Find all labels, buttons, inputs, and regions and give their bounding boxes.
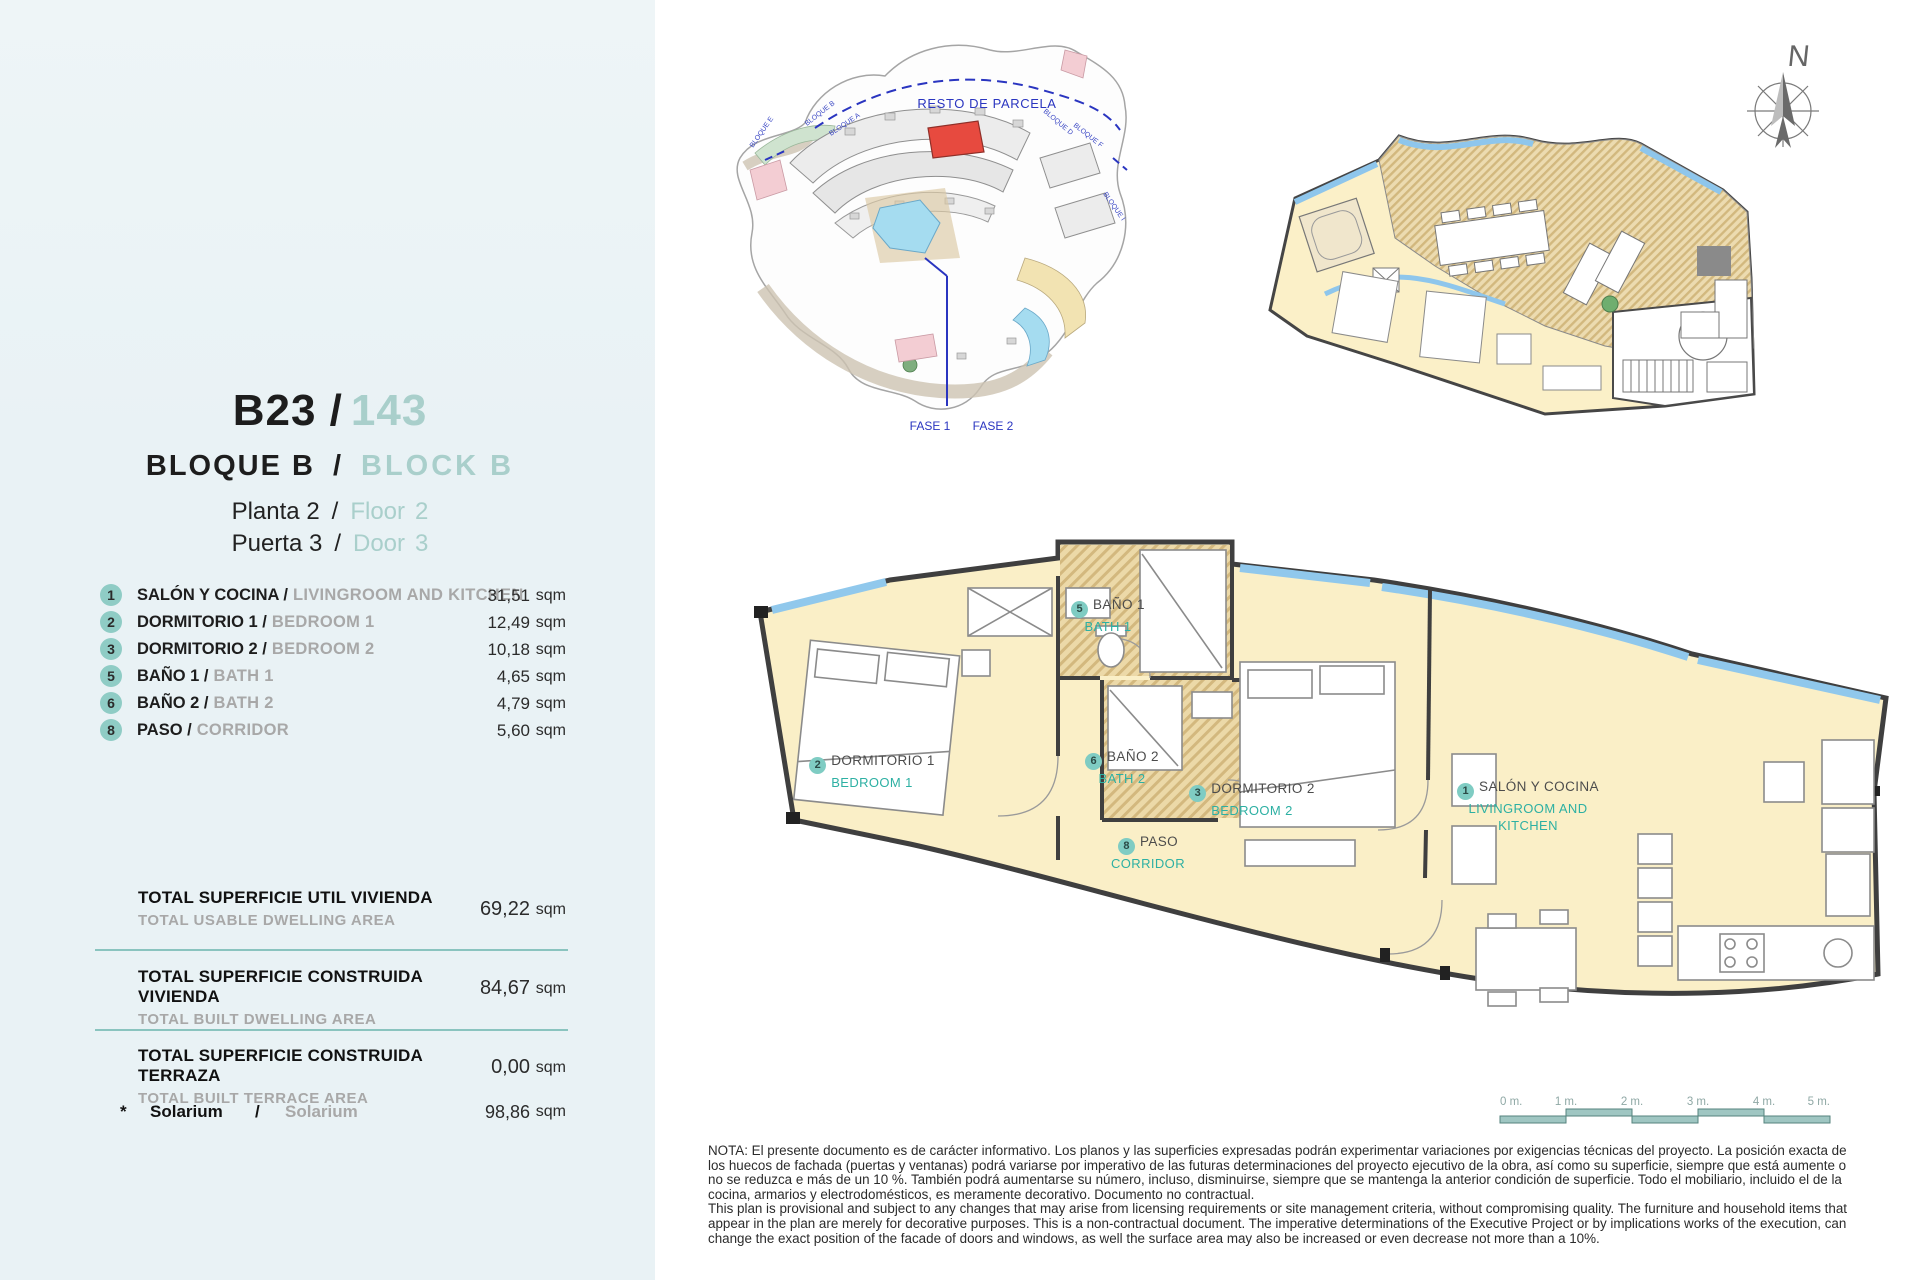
total-terrace-value: 0,00 — [430, 1056, 530, 1079]
scale-label: 5 m. — [1808, 1096, 1830, 1108]
room-num-badge: 8 — [100, 719, 122, 741]
total-built-value: 84,67 — [430, 977, 530, 1000]
floor-en-label: Floor — [350, 498, 405, 525]
room-label-bedroom1: 2DORMITORIO 1 BEDROOM 1 — [797, 752, 947, 791]
room-label-en: BATH 2 — [214, 694, 274, 712]
total-terrace-row: TOTAL SUPERFICIE CONSTRUIDA TERRAZA TOTA… — [95, 1046, 566, 1076]
room-name-en: BEDROOM 2 — [1177, 802, 1327, 819]
room-number-badge: 3 — [1189, 785, 1206, 802]
room-name-es: SALÓN Y COCINA — [1479, 779, 1599, 794]
unit-number: 143 — [351, 386, 427, 435]
room-area-unit: sqm — [536, 587, 566, 605]
door-en-label: Door — [353, 530, 405, 557]
solarium-value: 98,86 — [440, 1102, 530, 1123]
room-num-badge: 5 — [100, 665, 122, 687]
room-label-en: BATH 1 — [214, 667, 274, 685]
room-area: 12,49 — [440, 613, 530, 633]
room-label-en: BEDROOM 2 — [272, 640, 375, 658]
room-row-corridor: 8 PASO /CORRIDOR 5,60 sqm — [95, 719, 566, 745]
terrace-dark-unit — [1697, 246, 1731, 276]
legal-note-es: NOTA: El presente documento es de caráct… — [708, 1144, 1848, 1202]
floor-es: Planta 2 — [232, 498, 320, 525]
room-number-badge: 6 — [1085, 753, 1102, 770]
door-en-value: 3 — [415, 530, 428, 557]
total-built-unit: sqm — [536, 980, 566, 998]
plant-mark — [1602, 296, 1618, 312]
room-name-en: BATH 2 — [1047, 770, 1197, 787]
room-name-en-line2: KITCHEN — [1438, 817, 1618, 834]
solarium-sep: / — [255, 1102, 260, 1122]
room-area: 4,79 — [440, 694, 530, 714]
room-name-es: DORMITORIO 1 — [831, 753, 935, 768]
scale-label: 3 m. — [1687, 1096, 1709, 1108]
compass-north-label: N — [1786, 40, 1811, 73]
room-name-es: PASO — [1140, 834, 1178, 849]
room-name-es: DORMITORIO 2 — [1211, 781, 1315, 796]
total-built-en: TOTAL BUILT DWELLING AREA — [138, 1011, 438, 1028]
room-num-badge: 6 — [100, 692, 122, 714]
scale-label: 2 m. — [1621, 1096, 1643, 1108]
room-area-unit: sqm — [536, 641, 566, 659]
solarium-es: Solarium — [150, 1102, 223, 1122]
legal-note-en: This plan is provisional and subject to … — [708, 1202, 1848, 1246]
room-area-unit: sqm — [536, 695, 566, 713]
room-row-living: 1 SALÓN Y COCINA /LIVINGROOM AND KITCHEN… — [95, 584, 566, 610]
room-number-badge: 1 — [1457, 783, 1474, 800]
room-area: 10,18 — [440, 640, 530, 660]
room-area: 4,65 — [440, 667, 530, 687]
room-area-unit: sqm — [536, 614, 566, 632]
room-name-es: BAÑO 2 — [1107, 749, 1159, 764]
room-number-badge: 2 — [809, 757, 826, 774]
totals-divider — [95, 949, 568, 951]
unit-code: B23 / — [233, 386, 343, 435]
room-area: 5,60 — [440, 721, 530, 741]
room-area-unit: sqm — [536, 668, 566, 686]
solarium-en: Solarium — [285, 1102, 358, 1122]
floorplan-sheet: B23 /143 BLOQUE B/BLOCK B Planta 2/Floor… — [0, 0, 1920, 1280]
block-title-en: BLOCK B — [361, 450, 514, 482]
scale-label: 4 m. — [1753, 1096, 1775, 1108]
room-name-es: BAÑO 1 — [1093, 597, 1145, 612]
room-label-es: BAÑO 1 / — [137, 667, 209, 685]
room-name-en-line1: LIVINGROOM AND — [1438, 800, 1618, 817]
floor-line: Planta 2/Floor2 — [95, 498, 565, 526]
room-label-es: SALÓN Y COCINA / — [137, 586, 288, 604]
total-terrace-unit: sqm — [536, 1059, 566, 1077]
overview-plan — [1245, 98, 1795, 428]
room-name-en: BATH 1 — [1033, 618, 1183, 635]
room-name-en: CORRIDOR — [1073, 855, 1223, 872]
room-label-en: CORRIDOR — [197, 721, 289, 739]
total-usable-row: TOTAL SUPERFICIE UTIL VIVIENDA TOTAL USA… — [95, 888, 566, 918]
site-plan: RESTO DE PARCELA FASE 1 FASE 2 BLOQUE E … — [695, 8, 1150, 453]
solarium-row: * Solarium / Solarium 98,86 sqm — [95, 1100, 566, 1126]
spec-sidebar: B23 /143 BLOQUE B/BLOCK B Planta 2/Floor… — [0, 0, 655, 1280]
scale-bar: 0 m. 1 m. 2 m. 3 m. 4 m. 5 m. — [1492, 1092, 1842, 1134]
room-label-es: DORMITORIO 1 / — [137, 613, 267, 631]
total-usable-value: 69,22 — [430, 898, 530, 921]
stairs — [1623, 360, 1693, 392]
floor-en-value: 2 — [415, 498, 428, 525]
room-num-badge: 2 — [100, 611, 122, 633]
room-num-badge: 3 — [100, 638, 122, 660]
solarium-star: * — [120, 1102, 127, 1122]
room-label-es: DORMITORIO 2 / — [137, 640, 267, 658]
total-usable-es: TOTAL SUPERFICIE UTIL VIVIENDA — [138, 888, 438, 908]
fase2-label: FASE 2 — [973, 419, 1014, 433]
room-area: 31,51 — [440, 586, 530, 606]
sidebar-top-panel — [0, 0, 655, 438]
scale-label: 0 m. — [1500, 1096, 1522, 1108]
door-line: Puerta 3/Door3 — [95, 530, 565, 558]
scale-segments — [1500, 1109, 1830, 1123]
block-title-es: BLOQUE B — [146, 450, 315, 482]
room-area-unit: sqm — [536, 722, 566, 740]
room-label-living: 1SALÓN Y COCINA LIVINGROOM AND KITCHEN — [1438, 778, 1618, 834]
room-label-es: BAÑO 2 / — [137, 694, 209, 712]
solarium-unit: sqm — [536, 1103, 566, 1121]
room-label-bedroom2: 3DORMITORIO 2 BEDROOM 2 — [1177, 780, 1327, 819]
total-usable-en: TOTAL USABLE DWELLING AREA — [138, 912, 438, 929]
room-label-corridor: 8PASO CORRIDOR — [1073, 833, 1223, 872]
fase1-label: FASE 1 — [910, 419, 951, 433]
legal-note: NOTA: El presente documento es de caráct… — [708, 1144, 1848, 1246]
highlighted-unit-block — [928, 121, 984, 158]
utility-cabinet — [1707, 362, 1747, 392]
room-number-badge: 8 — [1118, 838, 1135, 855]
totals-divider — [95, 1029, 568, 1031]
unit-title: B23 /143 — [95, 386, 565, 436]
total-built-es: TOTAL SUPERFICIE CONSTRUIDA VIVIENDA — [138, 967, 438, 1007]
room-label-bath1: 5BAÑO 1 BATH 1 — [1033, 596, 1183, 635]
room-row-bath2: 6 BAÑO 2 /BATH 2 4,79 sqm — [95, 692, 566, 718]
block-title: BLOQUE B/BLOCK B — [95, 450, 565, 483]
total-usable-unit: sqm — [536, 901, 566, 919]
room-label-en: BEDROOM 1 — [272, 613, 375, 631]
room-number-badge: 5 — [1071, 601, 1088, 618]
block-title-sep: / — [333, 450, 343, 482]
room-num-badge: 1 — [100, 584, 122, 606]
floor-sep: / — [332, 498, 339, 525]
door-sep: / — [334, 530, 341, 557]
room-label-bath2: 6BAÑO 2 BATH 2 — [1047, 748, 1197, 787]
scale-labels: 0 m. 1 m. 2 m. 3 m. 4 m. 5 m. — [1500, 1096, 1830, 1108]
room-name-en: BEDROOM 1 — [797, 774, 947, 791]
total-terrace-es: TOTAL SUPERFICIE CONSTRUIDA TERRAZA — [138, 1046, 438, 1086]
scale-label: 1 m. — [1555, 1096, 1577, 1108]
room-label-es: PASO / — [137, 721, 192, 739]
total-built-row: TOTAL SUPERFICIE CONSTRUIDA VIVIENDA TOT… — [95, 967, 566, 997]
door-es: Puerta 3 — [232, 530, 323, 557]
room-row-bedroom2: 3 DORMITORIO 2 /BEDROOM 2 10,18 sqm — [95, 638, 566, 664]
resto-de-parcela-label: RESTO DE PARCELA — [917, 96, 1056, 111]
room-row-bedroom1: 2 DORMITORIO 1 /BEDROOM 1 12,49 sqm — [95, 611, 566, 637]
room-row-bath1: 5 BAÑO 1 /BATH 1 4,65 sqm — [95, 665, 566, 691]
